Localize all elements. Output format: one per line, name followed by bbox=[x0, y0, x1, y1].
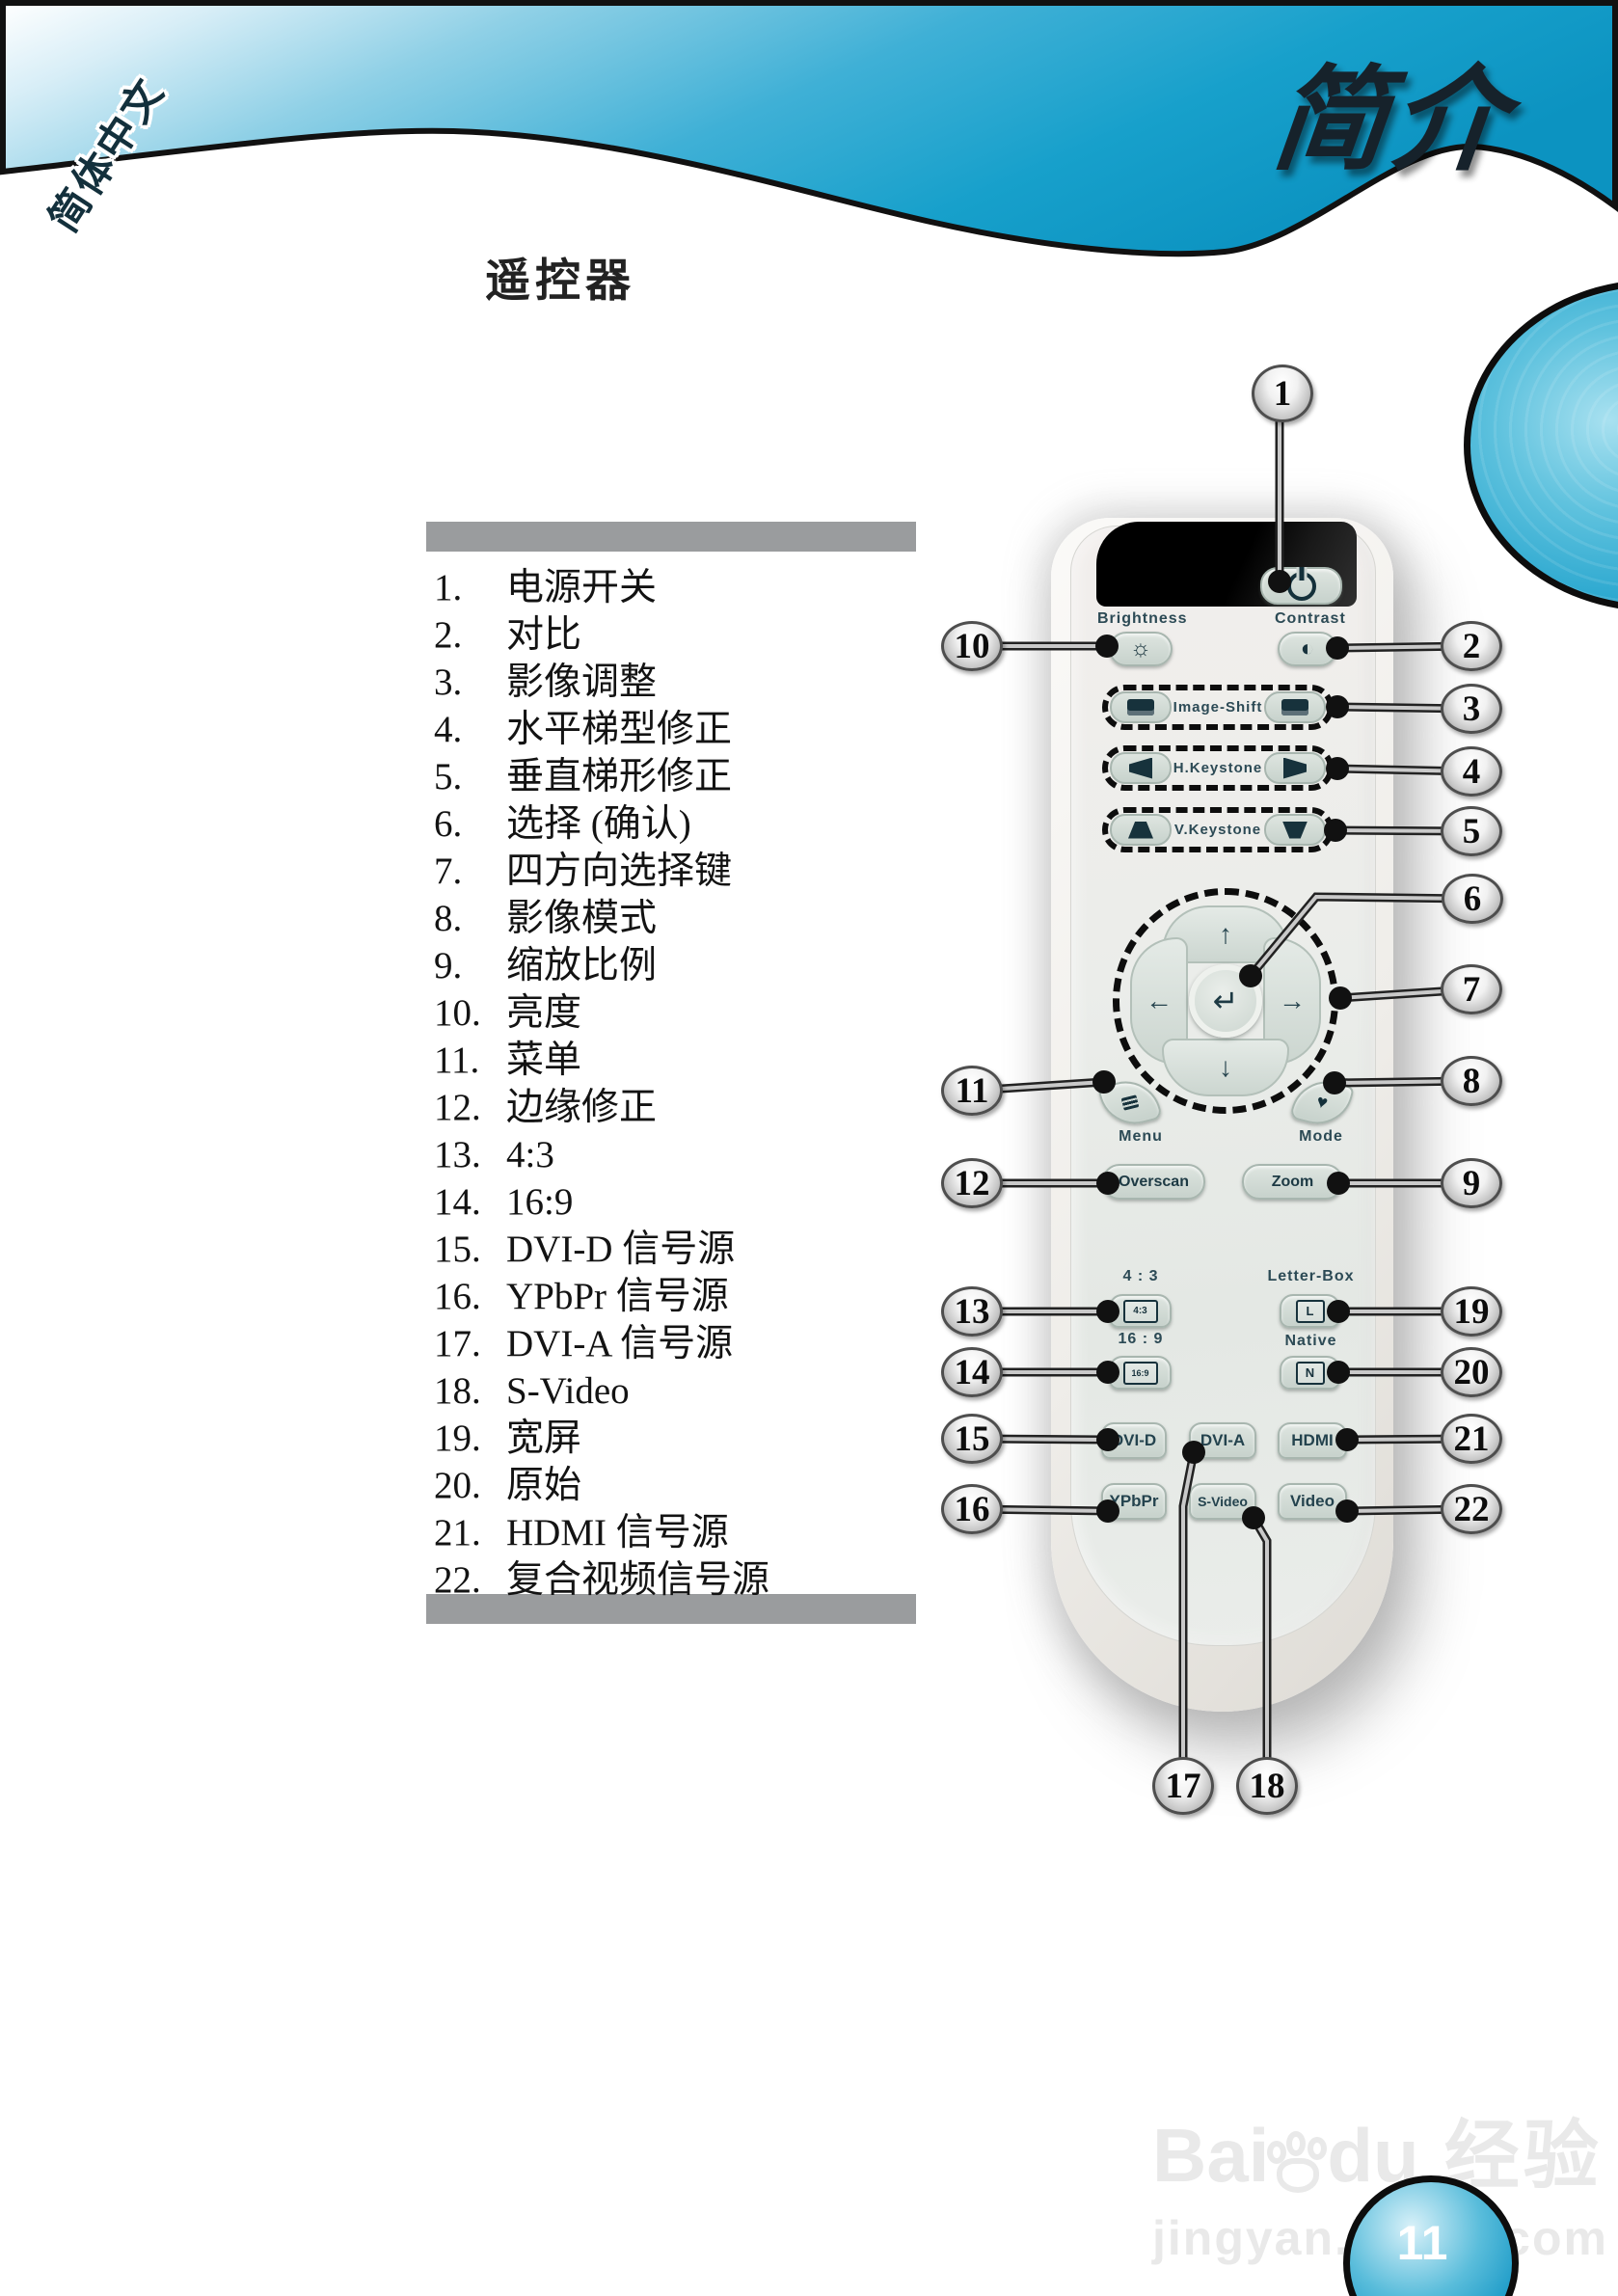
ratio-4-3-label: 4 : 3 bbox=[1109, 1268, 1173, 1285]
list-item: 1.电源开关 bbox=[434, 564, 769, 611]
ratio-16-9-icon: 16:9 bbox=[1123, 1362, 1158, 1385]
callout-ball-5: 5 bbox=[1441, 806, 1502, 856]
enter-button[interactable]: ↵ bbox=[1189, 964, 1262, 1038]
ratio-4-3-icon: 4:3 bbox=[1123, 1300, 1158, 1323]
list-item: 18.S-Video bbox=[434, 1367, 769, 1415]
power-icon bbox=[1287, 572, 1316, 601]
language-tab bbox=[1464, 280, 1618, 611]
callout-ball-18: 18 bbox=[1236, 1757, 1298, 1815]
sun-icon: ☼ bbox=[1130, 637, 1151, 661]
overscan-button[interactable]: Overscan bbox=[1102, 1164, 1205, 1200]
list-item: 11.菜单 bbox=[434, 1037, 769, 1084]
dvi-d-button[interactable]: DVI-D bbox=[1101, 1422, 1167, 1459]
callout-ball-4: 4 bbox=[1441, 746, 1502, 797]
callout-ball-7: 7 bbox=[1441, 964, 1502, 1014]
callout-ball-22: 22 bbox=[1441, 1484, 1502, 1534]
letterbox-label: Letter-Box bbox=[1265, 1268, 1357, 1285]
trapezoid-right-icon bbox=[1283, 758, 1307, 779]
callout-ball-2: 2 bbox=[1441, 621, 1502, 671]
list-item: 12.边缘修正 bbox=[434, 1084, 769, 1131]
list-item: 8.影像模式 bbox=[434, 895, 769, 942]
list-item: 13.4:3 bbox=[434, 1131, 769, 1178]
list-item: 4.水平梯型修正 bbox=[434, 706, 769, 753]
trapezoid-up-icon bbox=[1128, 822, 1153, 839]
monitor-icon bbox=[1127, 699, 1154, 716]
zoom-button[interactable]: Zoom bbox=[1242, 1164, 1343, 1200]
letterbox-button[interactable]: L bbox=[1280, 1294, 1340, 1328]
callout-ball-13: 13 bbox=[941, 1286, 1003, 1337]
enter-icon: ↵ bbox=[1213, 983, 1239, 1019]
list-item: 22.复合视频信号源 bbox=[434, 1556, 769, 1604]
mode-label: Mode bbox=[1282, 1128, 1360, 1146]
arrow-left-icon: ← bbox=[1146, 986, 1173, 1016]
menu-icon bbox=[1121, 1094, 1140, 1110]
callout-ball-10: 10 bbox=[941, 621, 1003, 671]
h-keystone-group: H.Keystone bbox=[1102, 745, 1334, 791]
list-item: 17.DVI-A 信号源 bbox=[434, 1320, 769, 1367]
callout-ball-8: 8 bbox=[1441, 1056, 1502, 1106]
arrow-up-icon: ↑ bbox=[1219, 919, 1232, 950]
section-title: 遥控器 bbox=[485, 243, 635, 310]
trapezoid-left-icon bbox=[1129, 758, 1152, 779]
list-item: 10.亮度 bbox=[434, 989, 769, 1037]
ratio-16-9-label: 16 : 9 bbox=[1109, 1331, 1173, 1348]
menu-label: Menu bbox=[1102, 1128, 1179, 1146]
callout-ball-17: 17 bbox=[1152, 1757, 1214, 1815]
page-number: 11 bbox=[1350, 2215, 1495, 2271]
list-item: 7.四方向选择键 bbox=[434, 848, 769, 895]
manual-page: 简介 简体中文 遥控器 1.电源开关 2.对比 3.影像调整 4.水平梯型修正 … bbox=[0, 0, 1618, 2296]
v-keystone-label: V.Keystone bbox=[1174, 822, 1261, 838]
ypbpr-button[interactable]: YPbPr bbox=[1101, 1483, 1167, 1520]
list-item: 9.缩放比例 bbox=[434, 942, 769, 989]
callout-ball-15: 15 bbox=[941, 1414, 1003, 1464]
h-keystone-label: H.Keystone bbox=[1173, 760, 1263, 776]
callout-ball-6: 6 bbox=[1442, 874, 1503, 924]
callout-ball-3: 3 bbox=[1441, 684, 1502, 734]
callout-ball-1: 1 bbox=[1252, 365, 1313, 422]
h-keystone-left-button[interactable] bbox=[1110, 752, 1172, 784]
list-item: 16.YPbPr 信号源 bbox=[434, 1273, 769, 1320]
arrow-right-icon: → bbox=[1279, 986, 1306, 1016]
hdmi-button[interactable]: HDMI bbox=[1278, 1422, 1347, 1459]
v-keystone-up-button[interactable] bbox=[1110, 814, 1172, 846]
native-icon: N bbox=[1296, 1362, 1325, 1385]
list-item: 19.宽屏 bbox=[434, 1415, 769, 1462]
list-item: 14.16:9 bbox=[434, 1178, 769, 1226]
trapezoid-down-icon bbox=[1282, 822, 1308, 839]
arrow-down-icon: ↓ bbox=[1219, 1052, 1232, 1083]
native-label: Native bbox=[1265, 1333, 1357, 1350]
page-title: 简介 bbox=[1266, 27, 1519, 192]
callout-ball-12: 12 bbox=[941, 1158, 1003, 1208]
contrast-icon: ◐ bbox=[1301, 637, 1315, 661]
image-shift-right-button[interactable] bbox=[1264, 691, 1326, 723]
image-shift-group: Image-Shift bbox=[1102, 685, 1334, 730]
callout-ball-14: 14 bbox=[941, 1347, 1003, 1397]
list-item: 3.影像调整 bbox=[434, 659, 769, 706]
tab-ring-pattern bbox=[1470, 286, 1618, 605]
function-list: 1.电源开关 2.对比 3.影像调整 4.水平梯型修正 5.垂直梯形修正 6.选… bbox=[434, 564, 769, 1604]
image-shift-label: Image-Shift bbox=[1173, 699, 1263, 716]
list-item: 2.对比 bbox=[434, 611, 769, 659]
divider-bar-top bbox=[426, 522, 916, 552]
power-button[interactable] bbox=[1260, 567, 1342, 605]
remote-body: Brightness Contrast ☼ ◐ Image-Shift H.Ke… bbox=[1051, 518, 1393, 1712]
ratio-16-9-button[interactable]: 16:9 bbox=[1109, 1356, 1172, 1390]
v-keystone-group: V.Keystone bbox=[1102, 807, 1334, 852]
native-button[interactable]: N bbox=[1280, 1356, 1340, 1390]
watermark-logo-bai: Bai bbox=[1152, 2118, 1269, 2193]
brightness-button[interactable]: ☼ bbox=[1109, 632, 1173, 666]
callout-ball-20: 20 bbox=[1441, 1347, 1502, 1397]
h-keystone-right-button[interactable] bbox=[1264, 752, 1326, 784]
brightness-label: Brightness bbox=[1097, 610, 1189, 628]
letterbox-icon: L bbox=[1296, 1300, 1325, 1323]
list-item: 21.HDMI 信号源 bbox=[434, 1509, 769, 1556]
contrast-label: Contrast bbox=[1275, 610, 1352, 628]
image-shift-left-button[interactable] bbox=[1110, 691, 1172, 723]
list-item: 6.选择 (确认) bbox=[434, 800, 769, 848]
dvi-a-button[interactable]: DVI-A bbox=[1189, 1422, 1256, 1459]
language-tab-label: 简体中文 bbox=[32, 64, 175, 241]
callout-ball-21: 21 bbox=[1441, 1414, 1502, 1464]
heart-icon: ♥ bbox=[1314, 1093, 1330, 1113]
watermark-logo-suffix: 经验 bbox=[1444, 2118, 1603, 2193]
monitor-icon bbox=[1281, 699, 1308, 716]
paw-icon bbox=[1271, 2133, 1325, 2193]
down-button[interactable]: ↓ bbox=[1162, 1039, 1289, 1096]
ratio-4-3-button[interactable]: 4:3 bbox=[1109, 1294, 1172, 1328]
list-item: 20.原始 bbox=[434, 1462, 769, 1509]
direction-pad: ↑ ← → ↓ ↵ bbox=[1113, 888, 1338, 1114]
s-video-button[interactable]: S-Video bbox=[1189, 1483, 1256, 1520]
callout-ball-11: 11 bbox=[941, 1066, 1003, 1116]
contrast-button[interactable]: ◐ bbox=[1278, 632, 1337, 666]
callout-ball-19: 19 bbox=[1441, 1286, 1502, 1337]
callout-ball-9: 9 bbox=[1441, 1158, 1502, 1208]
list-item: 5.垂直梯形修正 bbox=[434, 753, 769, 800]
v-keystone-down-button[interactable] bbox=[1264, 814, 1326, 846]
callout-ball-16: 16 bbox=[941, 1484, 1003, 1534]
video-button[interactable]: Video bbox=[1278, 1483, 1347, 1520]
list-item: 15.DVI-D 信号源 bbox=[434, 1226, 769, 1273]
